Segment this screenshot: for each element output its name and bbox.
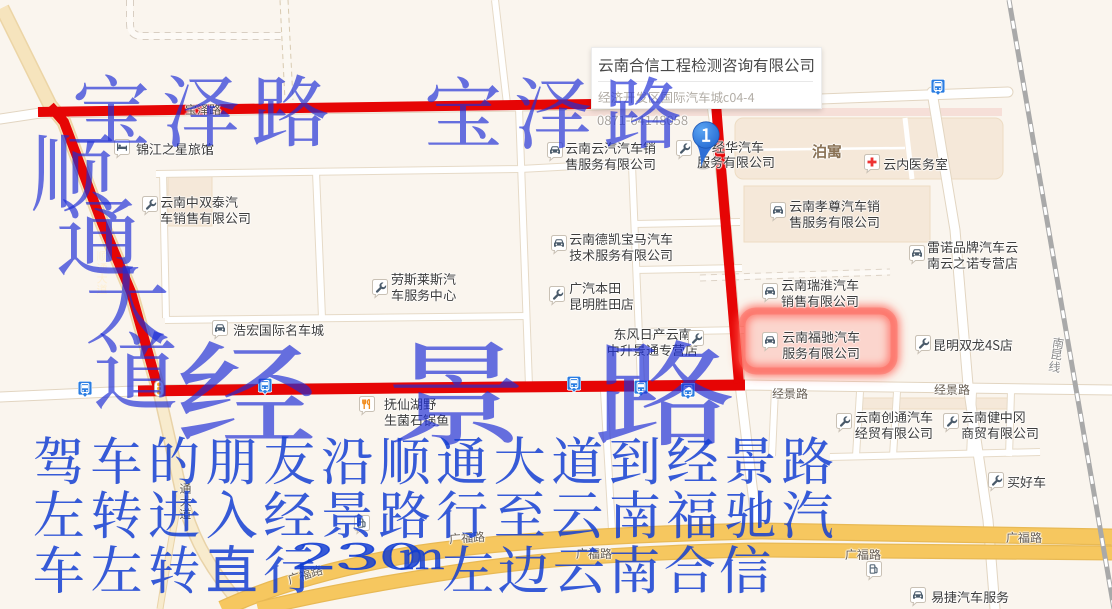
svg-text:1: 1 [701,122,711,148]
